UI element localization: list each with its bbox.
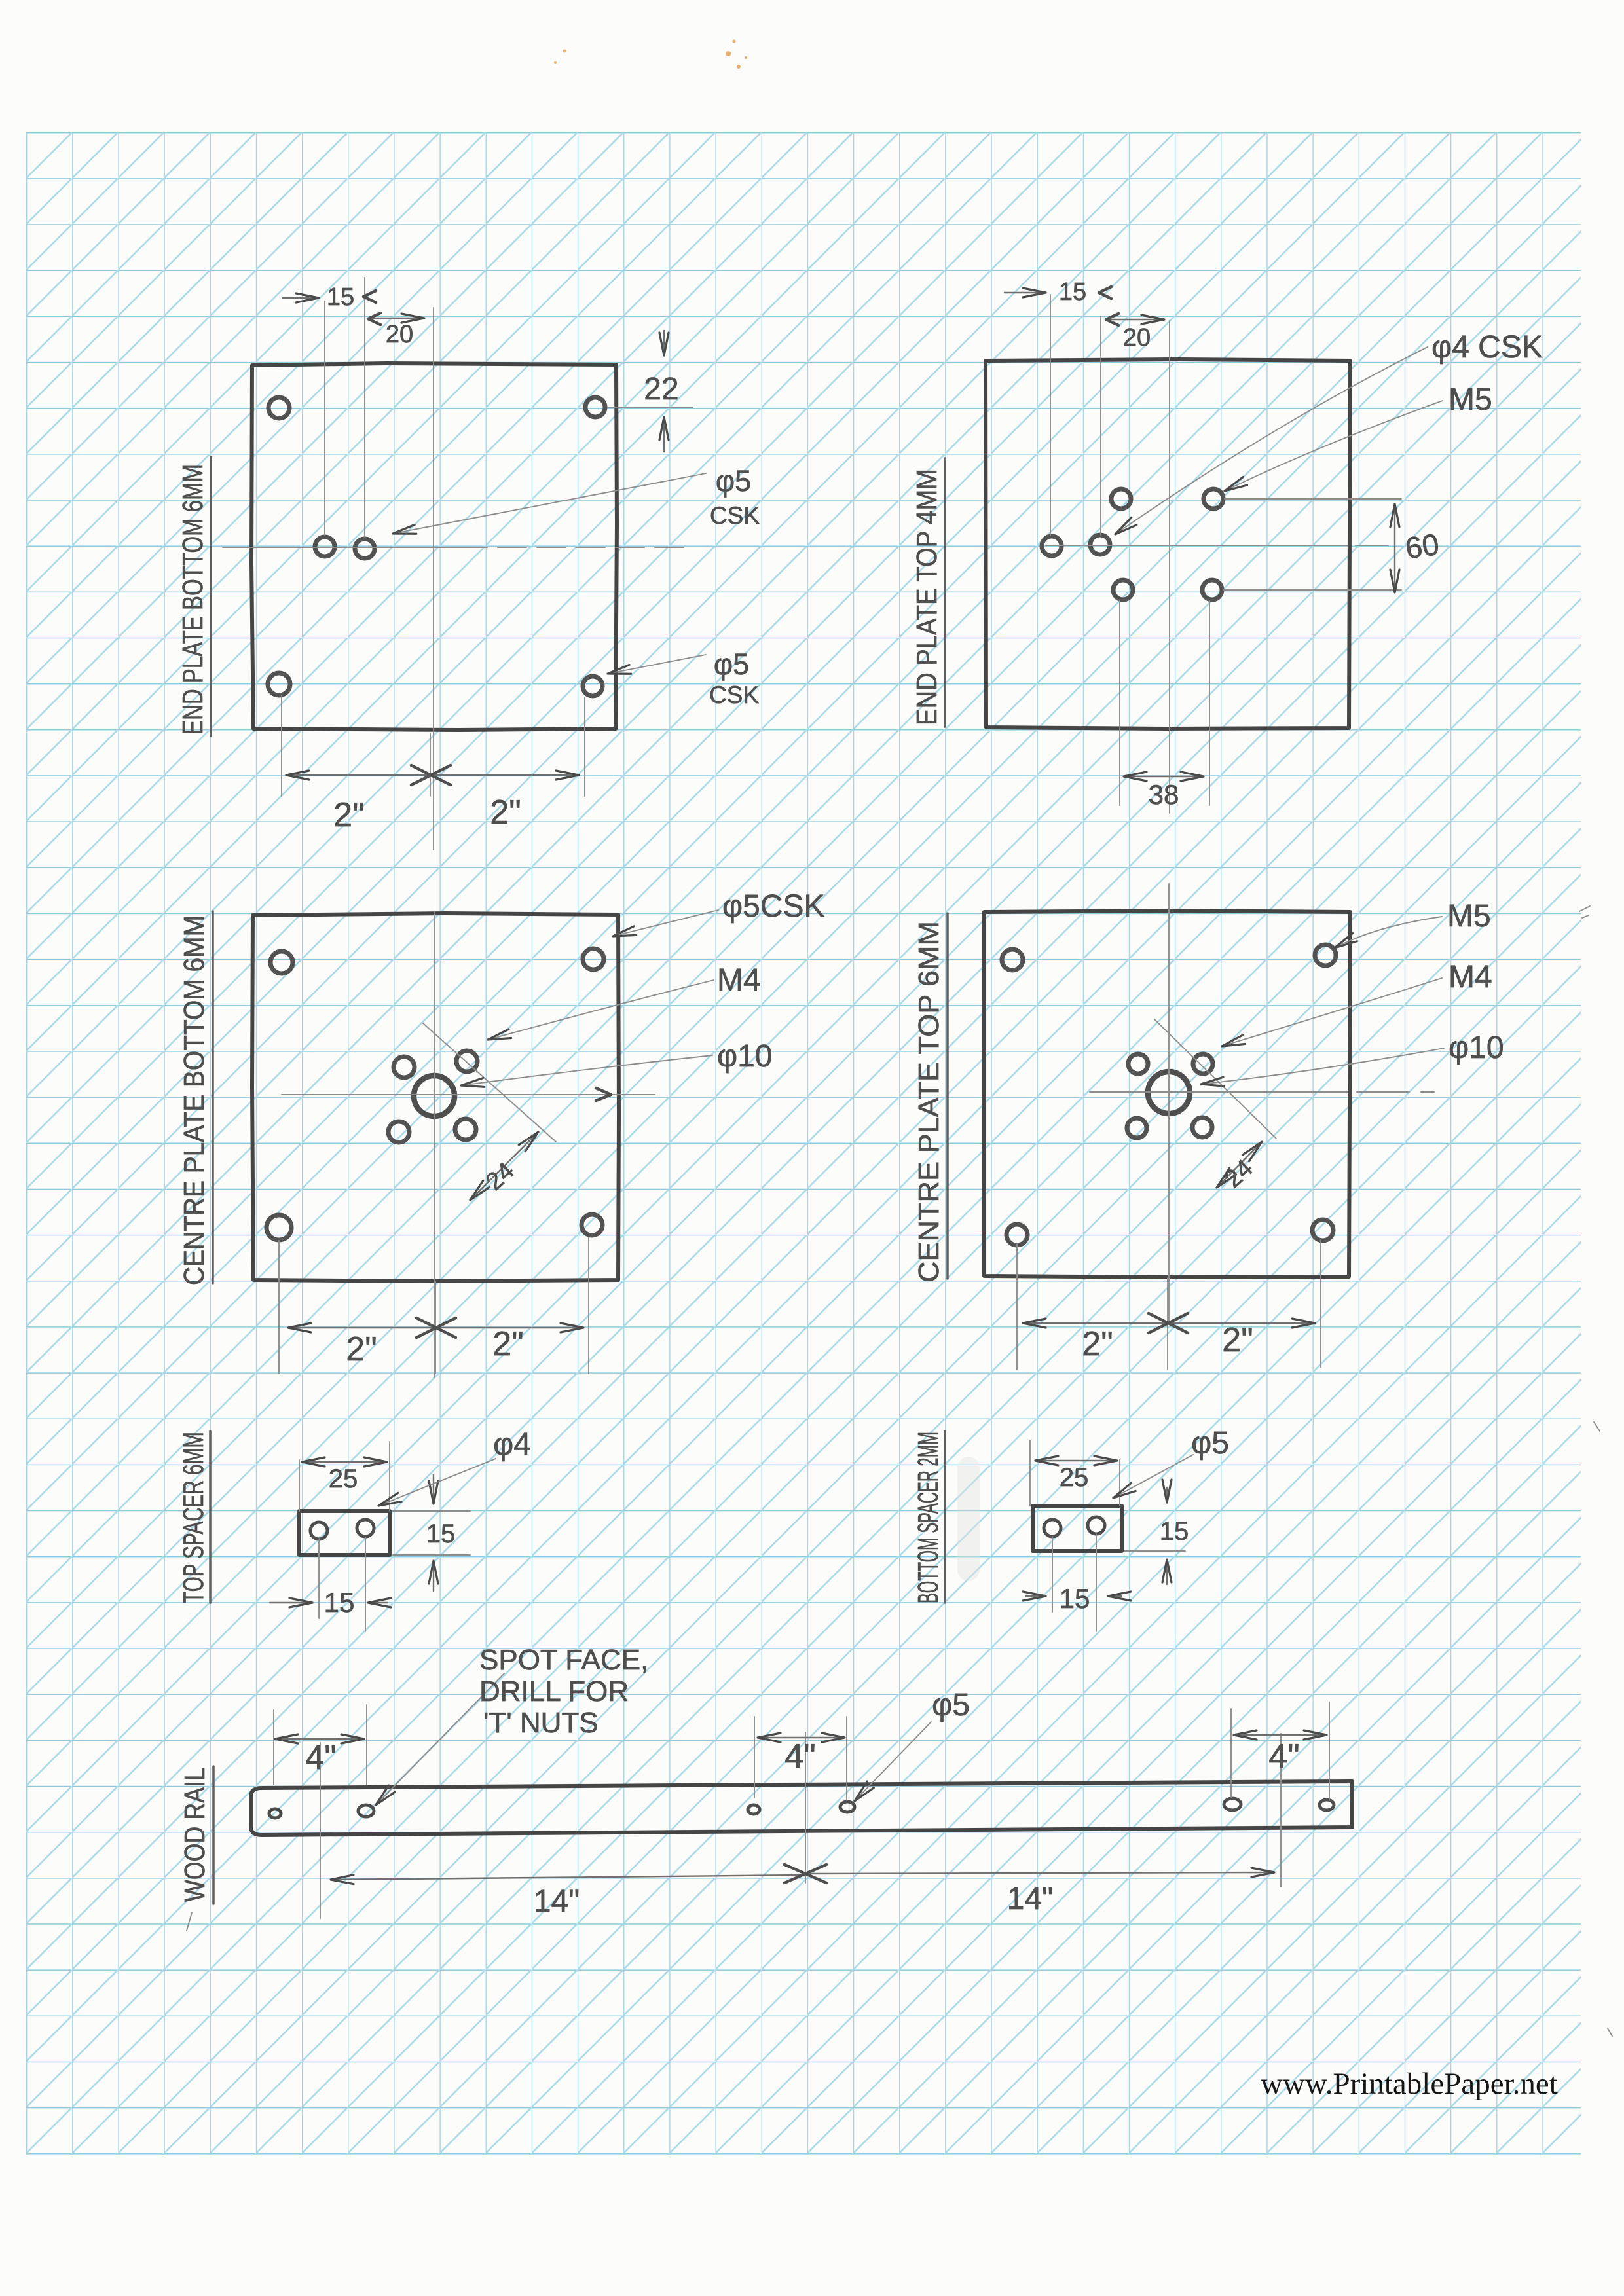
svg-text:φ10: φ10 [717, 1039, 773, 1074]
svg-text:2": 2" [490, 793, 521, 831]
svg-text:φ5CSK: φ5CSK [722, 889, 825, 924]
svg-text:15: 15 [327, 283, 354, 311]
svg-text:4": 4" [1268, 1738, 1299, 1776]
svg-text:15: 15 [1059, 278, 1086, 306]
svg-text:φ5: φ5 [716, 464, 751, 498]
svg-text:SPOT FACE,: SPOT FACE, [479, 1644, 648, 1676]
svg-text:2": 2" [492, 1325, 523, 1363]
svg-text:M5: M5 [1449, 382, 1492, 417]
svg-text:φ10: φ10 [1449, 1030, 1504, 1065]
svg-text:15: 15 [426, 1520, 456, 1548]
svg-text:CSK: CSK [710, 502, 760, 529]
svg-text:WOOD RAIL: WOOD RAIL [179, 1768, 211, 1902]
svg-text:φ4: φ4 [493, 1427, 531, 1462]
svg-text:25: 25 [329, 1465, 358, 1493]
svg-text:CENTRE PLATE BOTTOM 6MM: CENTRE PLATE BOTTOM 6MM [178, 915, 210, 1285]
svg-text:END PLATE TOP 4MM: END PLATE TOP 4MM [911, 469, 943, 725]
svg-text:20: 20 [1123, 324, 1151, 352]
svg-text:20: 20 [386, 321, 413, 348]
svg-text:4": 4" [305, 1739, 336, 1777]
svg-text:2": 2" [346, 1330, 377, 1368]
svg-text:25: 25 [1060, 1463, 1089, 1492]
svg-text:BOTTOM SPACER 2MM: BOTTOM SPACER 2MM [912, 1432, 944, 1603]
svg-text:14": 14" [534, 1884, 580, 1919]
svg-text:CSK: CSK [709, 682, 759, 708]
svg-text:4": 4" [784, 1738, 815, 1776]
svg-text:38: 38 [1149, 779, 1179, 810]
svg-text:60: 60 [1403, 527, 1441, 566]
svg-text:φ5: φ5 [932, 1688, 970, 1722]
svg-text:22: 22 [644, 372, 678, 407]
svg-text:M4: M4 [717, 963, 761, 998]
svg-text:www.PrintablePaper.net: www.PrintablePaper.net [1261, 2067, 1558, 2101]
svg-text:15: 15 [1060, 1583, 1090, 1614]
svg-text:2": 2" [1222, 1321, 1253, 1359]
svg-text:φ5: φ5 [714, 647, 749, 681]
svg-text:M4: M4 [1449, 960, 1492, 994]
svg-text:CENTRE PLATE TOP 6MM: CENTRE PLATE TOP 6MM [913, 921, 945, 1283]
svg-text:14": 14" [1007, 1882, 1053, 1916]
svg-text:END PLATE BOTTOM 6MM: END PLATE BOTTOM 6MM [177, 464, 209, 735]
svg-text:15: 15 [1160, 1517, 1189, 1546]
svg-text:M5: M5 [1447, 899, 1491, 934]
svg-text:2": 2" [333, 796, 364, 834]
svg-text:TOP SPACER 6MM: TOP SPACER 6MM [177, 1432, 210, 1603]
svg-text:'T' NUTS: 'T' NUTS [483, 1707, 599, 1739]
svg-text:DRILL FOR: DRILL FOR [479, 1675, 629, 1707]
svg-text:15: 15 [324, 1587, 355, 1618]
svg-text:2": 2" [1082, 1325, 1113, 1363]
svg-text:φ5: φ5 [1191, 1426, 1229, 1461]
svg-text:φ4 CSK: φ4 CSK [1431, 330, 1543, 365]
